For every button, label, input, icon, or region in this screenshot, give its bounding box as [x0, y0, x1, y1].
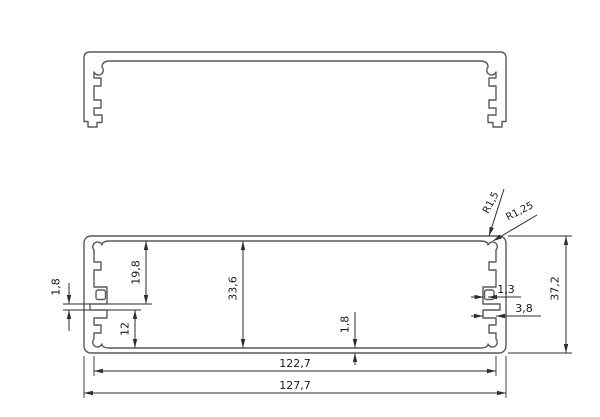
drawing-sheet: 19,8 12 33,6 1,8 1,8 37,2 1,3 3,8	[0, 0, 600, 417]
dim-label-122-7: 122,7	[279, 357, 311, 370]
radius-label-1-25: R1,25	[504, 200, 535, 223]
top-view-lid-profile	[84, 52, 506, 127]
radius-callout-1-5: R1,5	[481, 189, 504, 236]
dim-label-127-7: 127,7	[279, 379, 311, 392]
lid-right-half-outline	[295, 52, 506, 127]
dim-label-3-8: 3,8	[515, 302, 533, 315]
body-outer-outline	[84, 236, 506, 353]
dimension-37-2: 37,2	[508, 236, 572, 353]
dim-label-19-8: 19,8	[130, 260, 143, 285]
dim-label-12: 12	[119, 322, 132, 336]
dim-label-1-8-left: 1,8	[50, 278, 63, 296]
dimension-122-7: 122,7	[94, 356, 496, 376]
drawing-canvas: 19,8 12 33,6 1,8 1,8 37,2 1,3 3,8	[0, 0, 600, 417]
dim-label-37-2: 37,2	[549, 276, 562, 301]
radius-label-1-5: R1,5	[481, 190, 501, 215]
lid-left-half-outline	[84, 52, 295, 127]
dim-label-1-3: 1,3	[497, 283, 515, 296]
radius-callout-1-25: R1,25	[493, 200, 537, 241]
dim-label-1-8-bottom: 1,8	[339, 316, 352, 334]
dim-label-33-6: 33,6	[227, 276, 240, 301]
front-view-body-profile	[84, 236, 506, 353]
